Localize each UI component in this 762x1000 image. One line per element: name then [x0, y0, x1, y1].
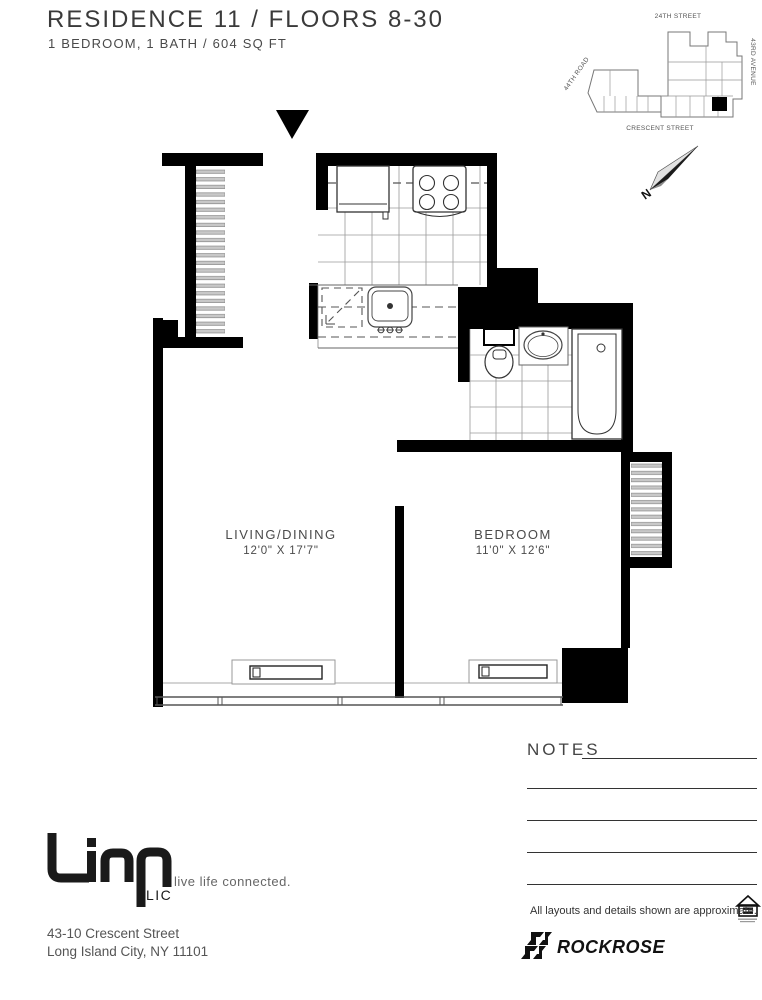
bedroom-closet: [631, 462, 662, 557]
street-label-left: 44TH ROAD: [563, 56, 591, 92]
linc-lic-label: LIC: [146, 887, 172, 903]
ptac-living: [232, 660, 335, 684]
entry-arrow-icon: [276, 110, 309, 139]
bedroom-label: BEDROOM: [474, 527, 552, 542]
living-room-dimensions: 12'0" X 17'7": [243, 545, 318, 557]
address-line2: Long Island City, NY 11101: [47, 944, 208, 959]
street-label-bottom: CRESCENT STREET: [626, 125, 694, 132]
ptac-bedroom: [469, 660, 557, 683]
disclaimer: All layouts and details shown are approx…: [530, 905, 757, 917]
refrigerator: [337, 166, 389, 219]
notes-line-1: [527, 788, 757, 789]
window-band: [155, 683, 563, 705]
notes-line-3: [527, 852, 757, 853]
street-label-top: 24TH STREET: [655, 13, 702, 20]
floorplan-page: 24TH STREET 43RD AVENUE CRESCENT STREET …: [0, 0, 762, 1000]
kitchen-sink: [368, 287, 412, 333]
entry-closet: [196, 168, 225, 336]
notes-heading-line: [582, 758, 757, 759]
address-line1: 43-10 Crescent Street: [47, 926, 179, 941]
north-arrow-icon: N: [639, 146, 698, 202]
notes-line-4: [527, 884, 757, 885]
notes-line-2: [527, 820, 757, 821]
stove: [413, 166, 466, 217]
bathtub: [572, 329, 622, 439]
rockrose-wordmark: ROCKROSE: [557, 937, 665, 958]
dishwasher: [322, 288, 362, 327]
street-label-right: 43RD AVENUE: [749, 38, 756, 86]
tagline: live life connected.: [174, 874, 291, 889]
site-map: [588, 32, 742, 117]
bedroom-dimensions: 11'0" X 12'6": [476, 545, 551, 557]
page-subtitle: 1 BEDROOM, 1 BATH / 604 SQ FT: [48, 36, 287, 51]
rockrose-logo-icon: [521, 932, 552, 959]
notes-heading: NOTES: [527, 740, 601, 760]
vanity-sink: [519, 327, 568, 365]
highlighted-unit: [712, 97, 727, 111]
living-room-label: LIVING/DINING: [225, 527, 336, 542]
toilet: [484, 329, 514, 378]
page-title: RESIDENCE 11 / FLOORS 8-30: [47, 6, 444, 34]
bathroom: [470, 327, 622, 440]
floorplan-drawing: 24TH STREET 43RD AVENUE CRESCENT STREET …: [0, 0, 762, 1000]
